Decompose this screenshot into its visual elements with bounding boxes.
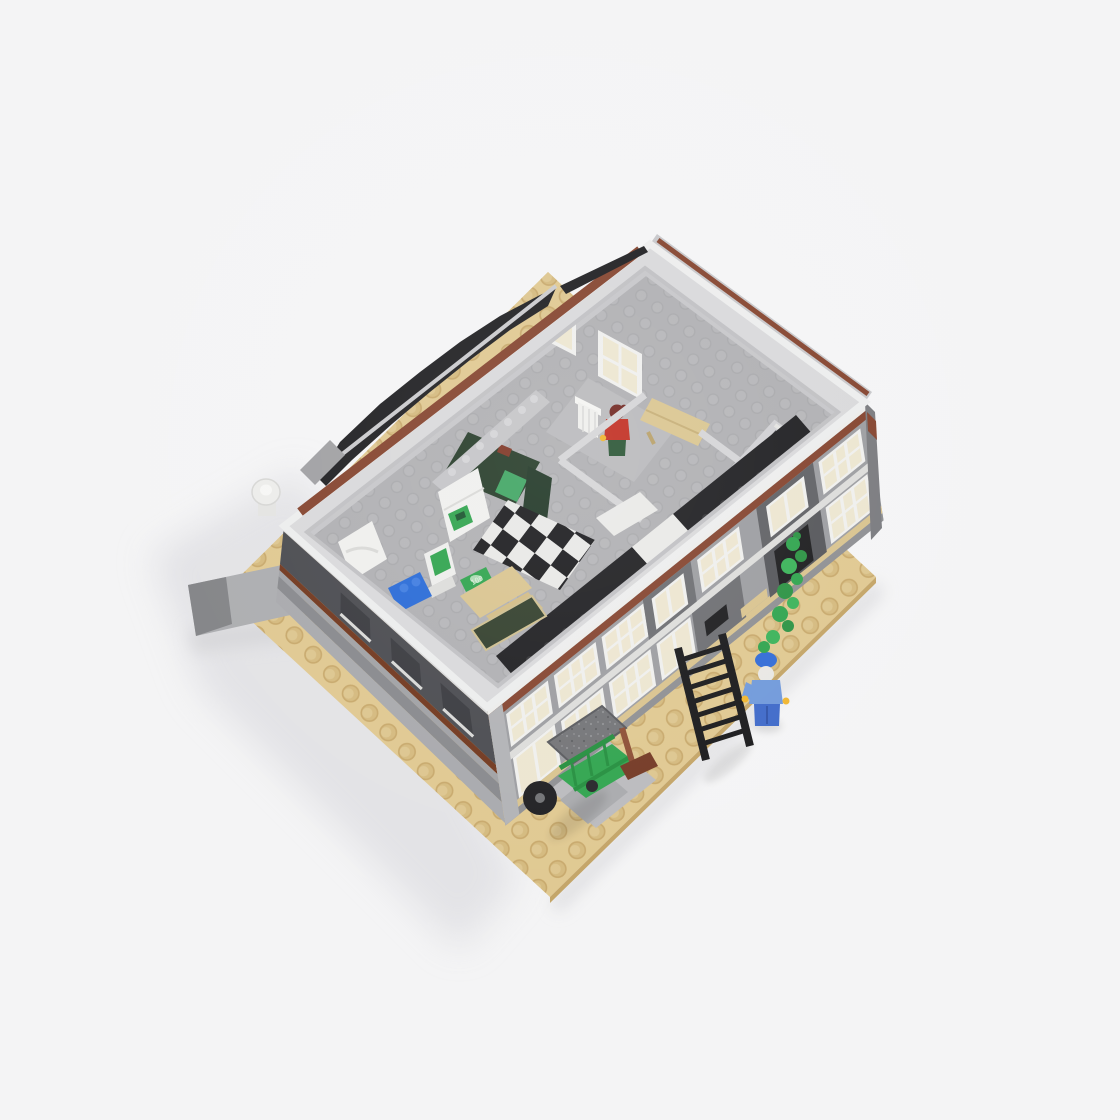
light-glare <box>0 0 1120 1120</box>
lego-building-photo: 100 <box>0 0 1120 1120</box>
photo-stage: 100 <box>0 0 1120 1120</box>
